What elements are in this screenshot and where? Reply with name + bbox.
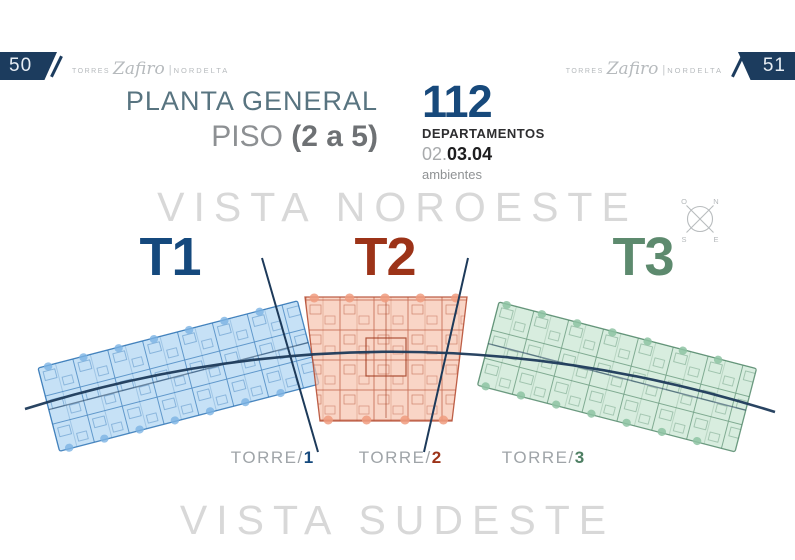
compass-s: S <box>681 235 686 244</box>
tower-1-floorplan <box>38 301 319 451</box>
torre-1-prefix: TORRE/ <box>231 448 304 467</box>
torre-2-caption: TORRE/2 <box>359 448 441 468</box>
compass-o: O <box>681 197 687 206</box>
tower-1-label: T1 <box>139 226 200 288</box>
compass-e: E <box>713 235 718 244</box>
torre-2-prefix: TORRE/ <box>359 448 432 467</box>
torre-3-prefix: TORRE/ <box>502 448 575 467</box>
tower-3-floorplan <box>477 302 756 452</box>
torre-1-number: 1 <box>304 448 313 467</box>
torre-1-caption: TORRE/1 <box>231 448 313 468</box>
torre-2-number: 2 <box>432 448 441 467</box>
tower-2-label: T2 <box>354 226 415 288</box>
tower-3-label: T3 <box>612 226 673 288</box>
compass-icon <box>687 206 714 233</box>
torre-3-number: 3 <box>575 448 584 467</box>
compass-letters: N O S E <box>681 197 719 244</box>
brochure-page: { "page": { "left_page_number": "50", "r… <box>0 0 795 560</box>
compass-n: N <box>713 197 718 206</box>
tower-2-floorplan <box>305 297 467 421</box>
torre-3-caption: TORRE/3 <box>502 448 584 468</box>
